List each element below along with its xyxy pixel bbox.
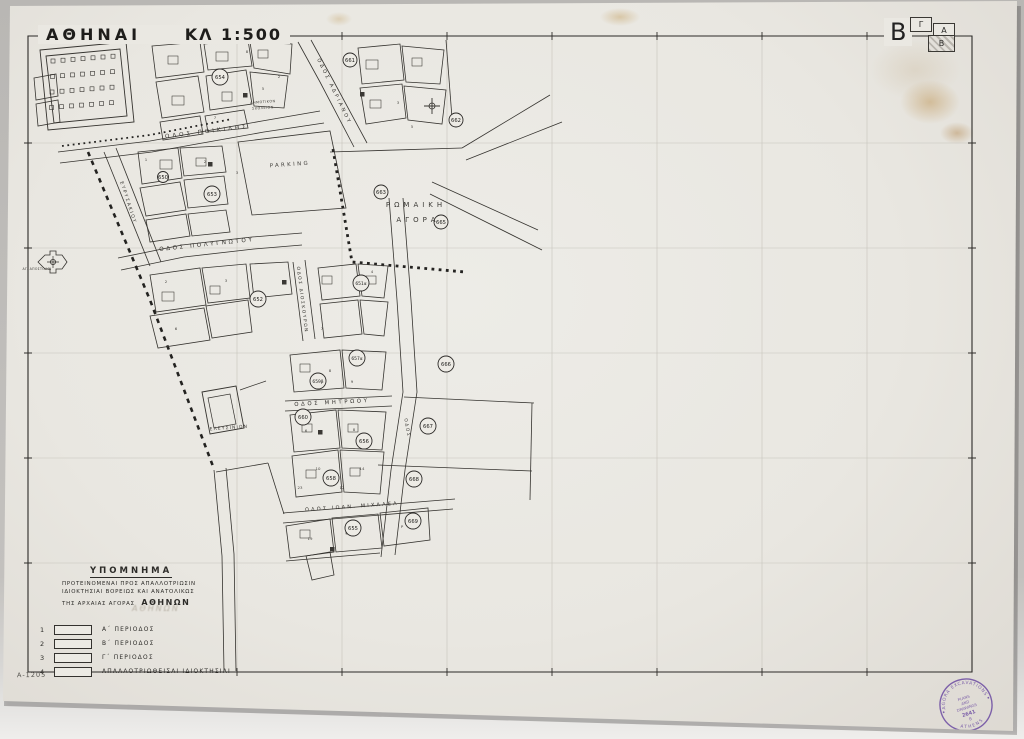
building-block (360, 300, 388, 336)
legend-item-number: 1 (40, 626, 54, 634)
index-box-beta: Β (928, 35, 955, 52)
parcel-circle: 651α (353, 275, 369, 291)
parcel-circle-number: 663 (376, 190, 386, 196)
plot-number: Ρ (401, 524, 404, 529)
building-block (146, 214, 190, 242)
colonnade-dot (80, 103, 84, 107)
legend-item: 2Β΄ ΠΕΡΙΟΔΟΣ (40, 637, 276, 651)
street-line (116, 148, 161, 262)
railway-dashed-line (88, 152, 214, 469)
plot-number: 23 (298, 485, 303, 490)
building-block (404, 86, 446, 124)
legend-item-number: 2 (40, 640, 54, 648)
colonnade-dot (101, 71, 105, 75)
stamp-letter: Β (968, 716, 972, 722)
sheet-letter: B (884, 18, 912, 46)
parcel-circle: 654 (212, 69, 228, 85)
parcel-circle: 653 (204, 186, 220, 202)
colonnade-dot (61, 74, 65, 78)
map-sheet: 650654661662653663665652651α657α666659β6… (0, 0, 1024, 739)
building-solid (208, 162, 213, 167)
colonnade-dot (60, 105, 64, 109)
parcel-circle-number: 654 (215, 75, 226, 81)
legend-item-label: ΑΠΑΛΛΟΤΡΙΩΘΕΙΣΑΙ ΙΔΙΟΚΤΗΣΙΑΙ (102, 669, 231, 675)
building-block (202, 264, 250, 303)
legend-subtitle-text: ΤΗΣ ΑΡΧΑΙΑΣ ΑΓΟΡΑΣ (62, 601, 135, 607)
building-block (402, 46, 444, 84)
building-detail (172, 96, 184, 105)
parcel-circle: 663 (374, 185, 388, 199)
building-detail (300, 364, 310, 372)
eleusinion-inner (208, 394, 236, 428)
building-block (36, 100, 60, 126)
building-detail (366, 60, 378, 69)
street-line (121, 245, 302, 270)
parcel-circle: 658 (323, 470, 339, 486)
building-solid (330, 547, 335, 552)
building-detail (160, 160, 172, 169)
parcel-circle-number: 660 (298, 415, 308, 421)
parcel-circle-number: 657α (351, 356, 362, 362)
colonnade-dot (51, 59, 55, 63)
parcel-circle: 655 (345, 520, 361, 536)
legend-swatch (54, 667, 92, 677)
building-detail (412, 58, 422, 66)
parcel-circle-number: 658 (326, 476, 336, 482)
plot-number: 7 (214, 115, 217, 120)
street-line (530, 403, 532, 500)
plot-number: 19 (308, 536, 313, 541)
legend-item: 3Γ΄ ΠΕΡΙΟΔΟΣ (40, 651, 276, 665)
colonnade-dot (81, 72, 85, 76)
legend: ΥΠΟΜΝΗΜΑ ΠΡΟΤΕΙΝΟΜΕΝΑΙ ΠΡΟΣ ΑΠΑΛΛΟΤΡΙΩΣΙ… (40, 558, 276, 679)
index-box-label: Β (939, 39, 945, 48)
legend-swatch (54, 639, 92, 649)
street-line (378, 465, 532, 471)
plot-number: 3 (236, 170, 239, 175)
area-label: PARKING (270, 161, 311, 170)
street-line (268, 463, 284, 514)
plot-number: 3 (397, 100, 400, 105)
parcel-circle-number: 655 (348, 526, 358, 532)
building-solid (243, 93, 248, 98)
building-detail (216, 52, 228, 61)
area-label: ΣΧΟΛΕΙΟΝ (252, 105, 274, 111)
scanned-map-photo: { "sheet": { "title": "ΑΘΗΝΑΙ", "scale":… (0, 0, 1024, 739)
area-label: ΡΩΜΑΙΚΗ (386, 201, 446, 209)
legend-item-label: Γ΄ ΠΕΡΙΟΔΟΣ (102, 655, 154, 661)
parcel-circle-number: 651α (355, 281, 366, 287)
street-name-label: ΕΥΡΥΣΑΚΙΟΥ (118, 181, 137, 225)
plot-number: 5 (411, 124, 414, 129)
colonnade-dot (91, 71, 95, 75)
colonnade-dot (90, 87, 94, 91)
plot-number: 12 (340, 485, 345, 490)
plot-number: 5 (262, 86, 265, 91)
colonnade-dot (111, 54, 115, 58)
plot-number: 9 (351, 379, 354, 384)
stamp-separator-dot (987, 697, 989, 699)
stamp-separator-dot (943, 711, 945, 713)
parcel-circle-number: 668 (409, 477, 419, 483)
building-solid (360, 92, 365, 97)
legend-swatch (54, 625, 92, 635)
parcel-circle-number: 653 (207, 192, 217, 198)
area-label: ΑΓ. ΑΠΟΣΤΟΛΟΙ (22, 267, 51, 271)
legend-item: 1Α΄ ΠΕΡΙΟΔΟΣ (40, 623, 276, 637)
legend-item-label: Β΄ ΠΕΡΙΟΔΟΣ (102, 641, 155, 647)
parcel-circle: 656 (356, 433, 372, 449)
ref-number: A-1205 (17, 671, 46, 680)
plot-number: 14 (360, 466, 365, 471)
parcel-circle: 661 (343, 53, 357, 67)
plot-number: 8 (329, 368, 332, 373)
plot-number: 2 (278, 74, 281, 79)
plot-number: 3 (225, 278, 228, 283)
legend-rows: 1Α΄ ΠΕΡΙΟΔΟΣ2Β΄ ΠΕΡΙΟΔΟΣ3Γ΄ ΠΕΡΙΟΔΟΣ4ΑΠΑ… (40, 623, 276, 679)
plot-number: 8 (246, 49, 249, 54)
building-block (340, 450, 384, 494)
parcel-circle: 659β (310, 373, 326, 389)
colonnade-dot (70, 88, 74, 92)
street-line (466, 122, 562, 160)
street-line (330, 148, 462, 152)
area-label: ΔΗΜΟΤΙΚΟΝ (250, 99, 276, 105)
street-line (216, 463, 268, 472)
building-block (156, 76, 204, 118)
map-title: ΑΘΗΝΑΙ (46, 25, 141, 44)
colonnade-dot (71, 57, 75, 61)
index-box-label: Γ (919, 20, 923, 29)
building-block (140, 182, 186, 216)
building-detail (162, 292, 174, 301)
colonnade-dot (110, 85, 114, 89)
title-block: ΑΘΗΝΑΙ ΚΛ 1:500 (38, 25, 290, 44)
plot-number: 4 (371, 269, 374, 274)
archive-stamp: AGORA EXCAVATIONS ATHENS PLANS AND DRAWI… (930, 674, 1002, 738)
excavation-dotted-boundary (333, 149, 465, 272)
building-detail (258, 50, 268, 58)
building-block (250, 42, 292, 74)
street-name-label: ΟΔΟΣ ΙΩΑΝ. ΜΙΧΑΛΕΑ (305, 501, 399, 514)
building-detail (322, 276, 332, 284)
street-line (404, 397, 534, 403)
building-block (206, 300, 252, 338)
colonnade-dot (111, 70, 115, 74)
building-block (188, 210, 230, 236)
building-detail (370, 100, 381, 108)
chapel-cross-icon (424, 98, 440, 114)
parcel-circle: 668 (406, 471, 422, 487)
parcel-circle-number: 669 (408, 519, 418, 525)
map-scale: ΚΛ 1:500 (185, 25, 282, 44)
parcel-circle: 657α (349, 350, 365, 366)
index-box-label: Α (941, 26, 946, 35)
parcel-circle: 652 (250, 291, 266, 307)
legend-subtitle: ΙΔΙΟΚΤΗΣΙΑΙ ΒΟΡΕΙΩΣ ΚΑΙ ΑΝΑΤΟΛΙΚΩΣ (62, 589, 276, 595)
parcel-circle: 660 (295, 409, 311, 425)
parcel-circle: 669 (405, 513, 421, 529)
street-line (462, 95, 550, 148)
parcel-circle-number: 662 (451, 118, 461, 124)
area-label: ΑΓΟΡΑ (396, 216, 439, 224)
building-block (306, 552, 334, 580)
building-block (380, 508, 430, 546)
parcel-circle: 666 (438, 356, 454, 372)
parcel-circle-number: 666 (441, 362, 451, 368)
building-detail (306, 470, 316, 478)
parcel-circle-number: 650 (158, 175, 168, 181)
legend-item-label: Α΄ ΠΕΡΙΟΔΟΣ (102, 627, 155, 633)
building-block (358, 44, 404, 84)
pencil-note: ΑΘΗΝΩΝ (132, 604, 180, 613)
parcel-circle-number: 652 (253, 297, 263, 303)
colonnade-dot (110, 101, 114, 105)
parcel-circle-number: 656 (359, 439, 369, 445)
colonnade-dot (60, 89, 64, 93)
legend-item: 4ΑΠΑΛΛΟΤΡΙΩΘΕΙΣΑΙ ΙΔΙΟΚΤΗΣΙΑΙ (40, 665, 276, 679)
building-block (238, 131, 346, 215)
colonnade-building (40, 42, 134, 130)
colonnade-dot (50, 106, 54, 110)
colonnade-dot (101, 55, 105, 59)
buildings (34, 40, 446, 580)
parcel-circle: 667 (420, 418, 436, 434)
colonnade-dot (71, 73, 75, 77)
building-block (150, 268, 206, 312)
building-detail (222, 92, 232, 101)
parcel-circle-number: 661 (345, 58, 355, 64)
street-name-label: ΟΔΟΣ ΜΗΤΡΩΟΥ (294, 398, 370, 408)
building-detail (168, 56, 178, 64)
legend-subtitle: ΠΡΟΤΕΙΝΟΜΕΝΑΙ ΠΡΟΣ ΑΠΑΛΛΟΤΡΙΩΣΙΝ (62, 581, 276, 587)
building-detail (350, 468, 360, 476)
building-solid (318, 430, 323, 435)
colonnade-dot (61, 58, 65, 62)
legend-item-number: 3 (40, 654, 54, 662)
building-block (320, 300, 362, 338)
colonnade-dot (100, 86, 104, 90)
street-name-label: ΟΔΟΣ (402, 418, 411, 438)
colonnade-dot (90, 102, 94, 106)
parcel-circle-number: 659β (312, 379, 323, 385)
eleusinion-link (240, 381, 266, 390)
plot-number: 6 (175, 326, 178, 331)
colonnade-dot (80, 88, 84, 92)
colonnade-dot (91, 56, 95, 60)
building-solid (282, 280, 287, 285)
plot-number: 2 (165, 279, 168, 284)
parcel-circle: 662 (449, 113, 463, 127)
building-detail (210, 286, 220, 294)
plot-number: 10 (316, 466, 321, 471)
parcel-circle: 650 (158, 172, 169, 183)
parcel-circle-number: 667 (423, 424, 433, 430)
colonnade-dot (81, 57, 85, 61)
street-name-label: ΟΔΟΣ ΑΔΡΙΑΝΟΥ (315, 58, 352, 126)
plot-number: 1 (145, 157, 148, 162)
colonnade-dot (70, 104, 74, 108)
colonnade-dot (100, 102, 104, 106)
plot-number: 8 (353, 427, 356, 432)
legend-swatch (54, 653, 92, 663)
plot-number: 2 (204, 159, 207, 164)
index-box-gamma: Γ (910, 17, 932, 32)
building-block (150, 308, 210, 348)
legend-title: ΥΠΟΜΝΗΜΑ (90, 566, 172, 578)
